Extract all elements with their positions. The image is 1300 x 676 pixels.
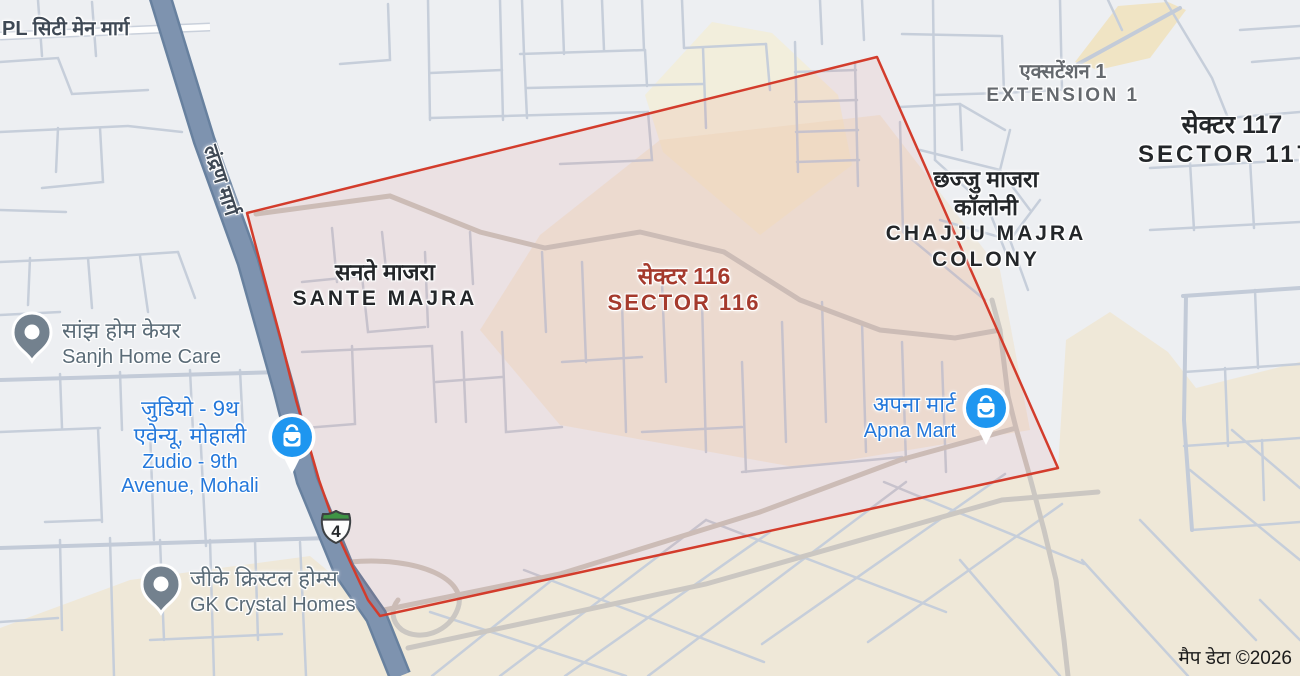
locality-sante-majra-en: SANTE MAJRA: [293, 286, 478, 312]
locality-sante-majra-hi: सनते माजरा: [293, 258, 478, 286]
locality-sector-117-hi-line[interactable]: सेक्टर 117: [1182, 110, 1283, 141]
locality-sector-116-hi: सेक्टर 116: [608, 262, 761, 290]
poi-label-sanjh-home-care[interactable]: सांझ होम केयर Sanjh Home Care: [62, 318, 221, 369]
map-attribution: मैप डेटा ©2026: [1178, 644, 1292, 670]
locality-sector-116[interactable]: सेक्टर 116 SECTOR 116: [608, 262, 761, 317]
locality-sante-majra[interactable]: सनते माजरा SANTE MAJRA: [293, 258, 478, 312]
road-label-pl-city-main-marg: PL सिटी मेन मार्ग: [2, 14, 129, 41]
generic-poi-pin-icon: [139, 562, 183, 616]
poi-label-gk-crystal-homes[interactable]: जीके क्रिस्टल होम्स GK Crystal Homes: [190, 566, 356, 617]
locality-extension-1-en: EXTENSION 1: [986, 84, 1139, 107]
poi-label-apna-mart[interactable]: अपना मार्ट Apna Mart: [864, 392, 956, 443]
locality-sector-117-en-line[interactable]: SECTOR 117: [1138, 140, 1300, 169]
locality-sector-116-en: SECTOR 116: [608, 290, 761, 317]
shopping-bag-pin-icon: [957, 383, 1015, 447]
map-canvas[interactable]: 4 PL सिटी मेन मार्ग लंद्रण मार्ग सनते मा…: [0, 0, 1300, 676]
poi-pin-gk-crystal-homes[interactable]: [139, 562, 183, 621]
locality-extension-1-hi: एक्सटेंशन 1: [986, 60, 1139, 84]
locality-chajju-majra-colony[interactable]: छज्जु माजरा कॉलोनी CHAJJU MAJRA COLONY: [886, 165, 1087, 272]
generic-poi-pin-icon: [10, 310, 54, 364]
poi-label-zudio[interactable]: जुडियो - 9थ एवेन्यू, मोहाली Zudio - 9th …: [121, 396, 259, 498]
poi-pin-zudio[interactable]: [263, 412, 321, 481]
route-shield-number: 4: [331, 522, 341, 541]
locality-extension-1[interactable]: एक्सटेंशन 1 EXTENSION 1: [986, 60, 1139, 108]
poi-pin-apna-mart[interactable]: [957, 383, 1015, 452]
poi-pin-sanjh-home-care[interactable]: [10, 310, 54, 369]
shopping-bag-pin-icon: [263, 412, 321, 476]
